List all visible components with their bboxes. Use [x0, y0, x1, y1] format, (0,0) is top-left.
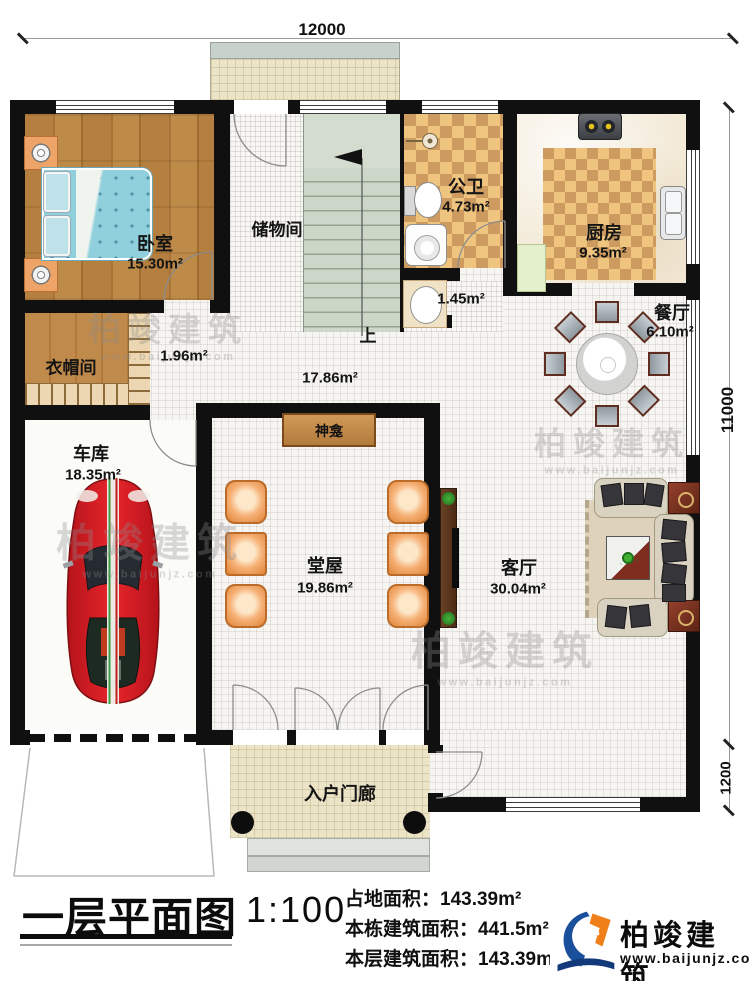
room-area-dining: 6.10m²	[646, 324, 694, 341]
watermark-url: www.baijunjz.com	[56, 570, 244, 581]
room-area-kitchen: 9.35m²	[579, 245, 627, 262]
watermark: 柏竣建筑www.baijunjz.com	[411, 632, 599, 689]
room-label-cloak: 衣帽间	[46, 354, 97, 379]
watermark-brand: 柏竣建筑	[88, 311, 248, 348]
brand-logo-block: 柏竣建筑 www.baijunjz.com	[550, 906, 750, 980]
wash-area: 1.45m²	[437, 291, 485, 308]
floor-area: 本层建筑面积：143.39m²	[345, 949, 559, 970]
stairs-up-label: 上	[360, 322, 377, 347]
room-area-garage: 18.35m²	[65, 467, 121, 484]
watermark-brand: 柏竣建筑	[411, 630, 599, 674]
room-label-garage: 车库	[73, 440, 109, 466]
brand-logo-url: www.baijunjz.com	[620, 950, 750, 966]
watermark-url: www.baijunjz.com	[534, 466, 690, 477]
room-area-main-hall: 19.86m²	[297, 580, 353, 597]
room-area-living: 30.04m²	[490, 581, 546, 598]
shrine-label: 神龛	[315, 421, 343, 441]
porch-column	[231, 811, 254, 834]
porch-column	[403, 811, 426, 834]
room-label-kitchen: 厨房	[586, 219, 622, 245]
room-area-bedroom: 15.30m²	[127, 256, 183, 273]
plan-scale: 1:100	[246, 889, 346, 931]
room-area-cloak: 1.96m²	[160, 348, 208, 365]
land-area: 占地面积：143.39m²	[345, 884, 521, 911]
room-label-dining: 餐厅	[654, 299, 690, 325]
brand-logo-icon	[552, 906, 618, 976]
brand-logo-text: 柏竣建筑	[620, 912, 750, 981]
floor-plan-page: 12000 11000 1200	[0, 0, 750, 981]
watermark: 柏竣建筑www.baijunjz.com	[56, 524, 244, 581]
title-underline	[20, 934, 232, 939]
watermark-brand: 柏竣建筑	[56, 522, 244, 566]
room-label-storage: 储物间	[252, 216, 303, 241]
room-area-bath: 4.73m²	[442, 199, 490, 216]
room-label-bath: 公卫	[448, 173, 484, 199]
watermark-url: www.baijunjz.com	[411, 678, 599, 689]
title-underline-thin	[20, 944, 232, 946]
room-label-living: 客厅	[501, 554, 537, 580]
room-label-porch: 入户门廊	[304, 780, 376, 806]
room-label-bedroom: 卧室	[137, 230, 173, 256]
watermark: 柏竣建筑www.baijunjz.com	[534, 428, 690, 477]
door-swings-overlay	[0, 0, 750, 981]
hall-area: 17.86m²	[302, 370, 358, 387]
room-label-main-hall: 堂屋	[307, 552, 343, 578]
watermark-brand: 柏竣建筑	[534, 426, 690, 462]
